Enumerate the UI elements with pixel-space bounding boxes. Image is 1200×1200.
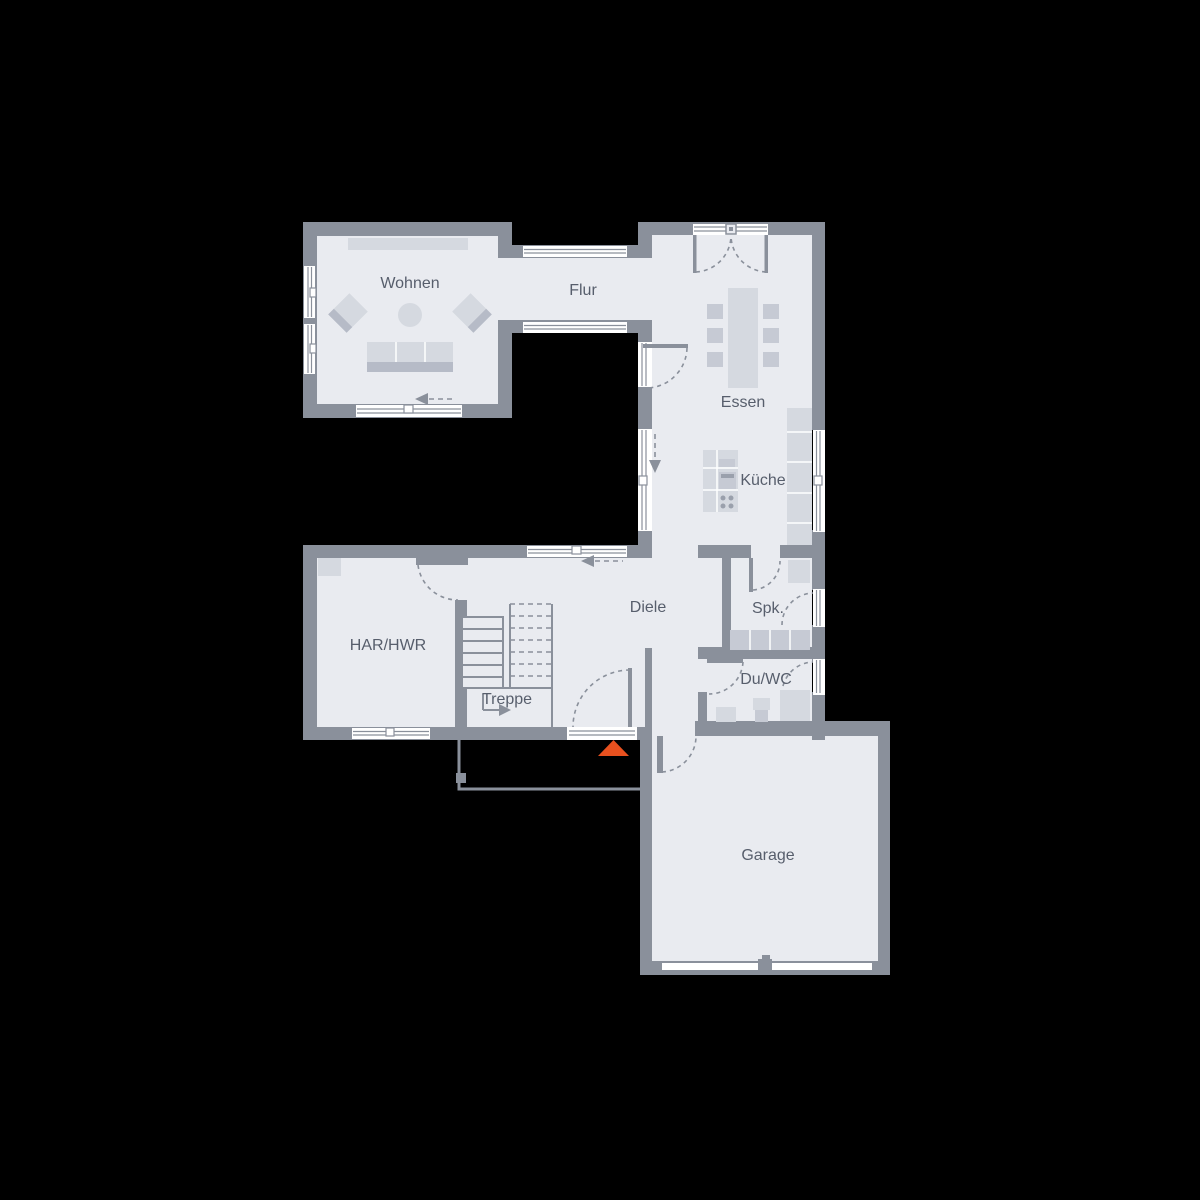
- passage-kueche-diele: [652, 545, 698, 558]
- window-flur-north: [523, 246, 627, 257]
- sofa: [367, 342, 453, 372]
- window-diele-north: [527, 546, 627, 557]
- sink-base: [755, 710, 768, 722]
- label-essen: Essen: [721, 394, 765, 411]
- label-treppe: Treppe: [482, 691, 532, 708]
- window-wohnen-south: [356, 405, 462, 417]
- sideboard: [348, 238, 468, 250]
- coffee-table: [398, 303, 422, 327]
- label-harhwr: HAR/HWR: [350, 637, 426, 654]
- shower: [780, 690, 810, 721]
- label-kueche: Küche: [740, 472, 785, 489]
- porch-post: [456, 773, 466, 783]
- kitchen-island: [703, 450, 738, 512]
- window-flur-south: [523, 322, 627, 333]
- pantry-shelves: [730, 630, 810, 650]
- label-garage: Garage: [741, 847, 794, 864]
- door-spk: [749, 558, 753, 592]
- window-kueche-east: [813, 430, 825, 532]
- floor-plan-canvas: Wohnen Flur Essen Küche Diele Spk. Du/WC…: [0, 0, 1200, 1200]
- window-har-south: [352, 728, 430, 739]
- window-kueche-west: [638, 429, 652, 531]
- label-diele: Diele: [630, 599, 667, 616]
- label-duwc: Du/WC: [740, 671, 792, 688]
- door-garage: [657, 736, 663, 773]
- floor-plan: Wohnen Flur Essen Küche Diele Spk. Du/WC…: [0, 0, 1200, 1200]
- sink: [753, 698, 770, 710]
- door-duwc: [707, 659, 743, 663]
- door-har: [416, 558, 468, 565]
- har-fixture: [318, 558, 341, 576]
- toilet: [716, 707, 736, 722]
- label-spk: Spk.: [752, 600, 784, 617]
- label-wohnen: Wohnen: [380, 275, 439, 292]
- label-flur: Flur: [569, 282, 597, 299]
